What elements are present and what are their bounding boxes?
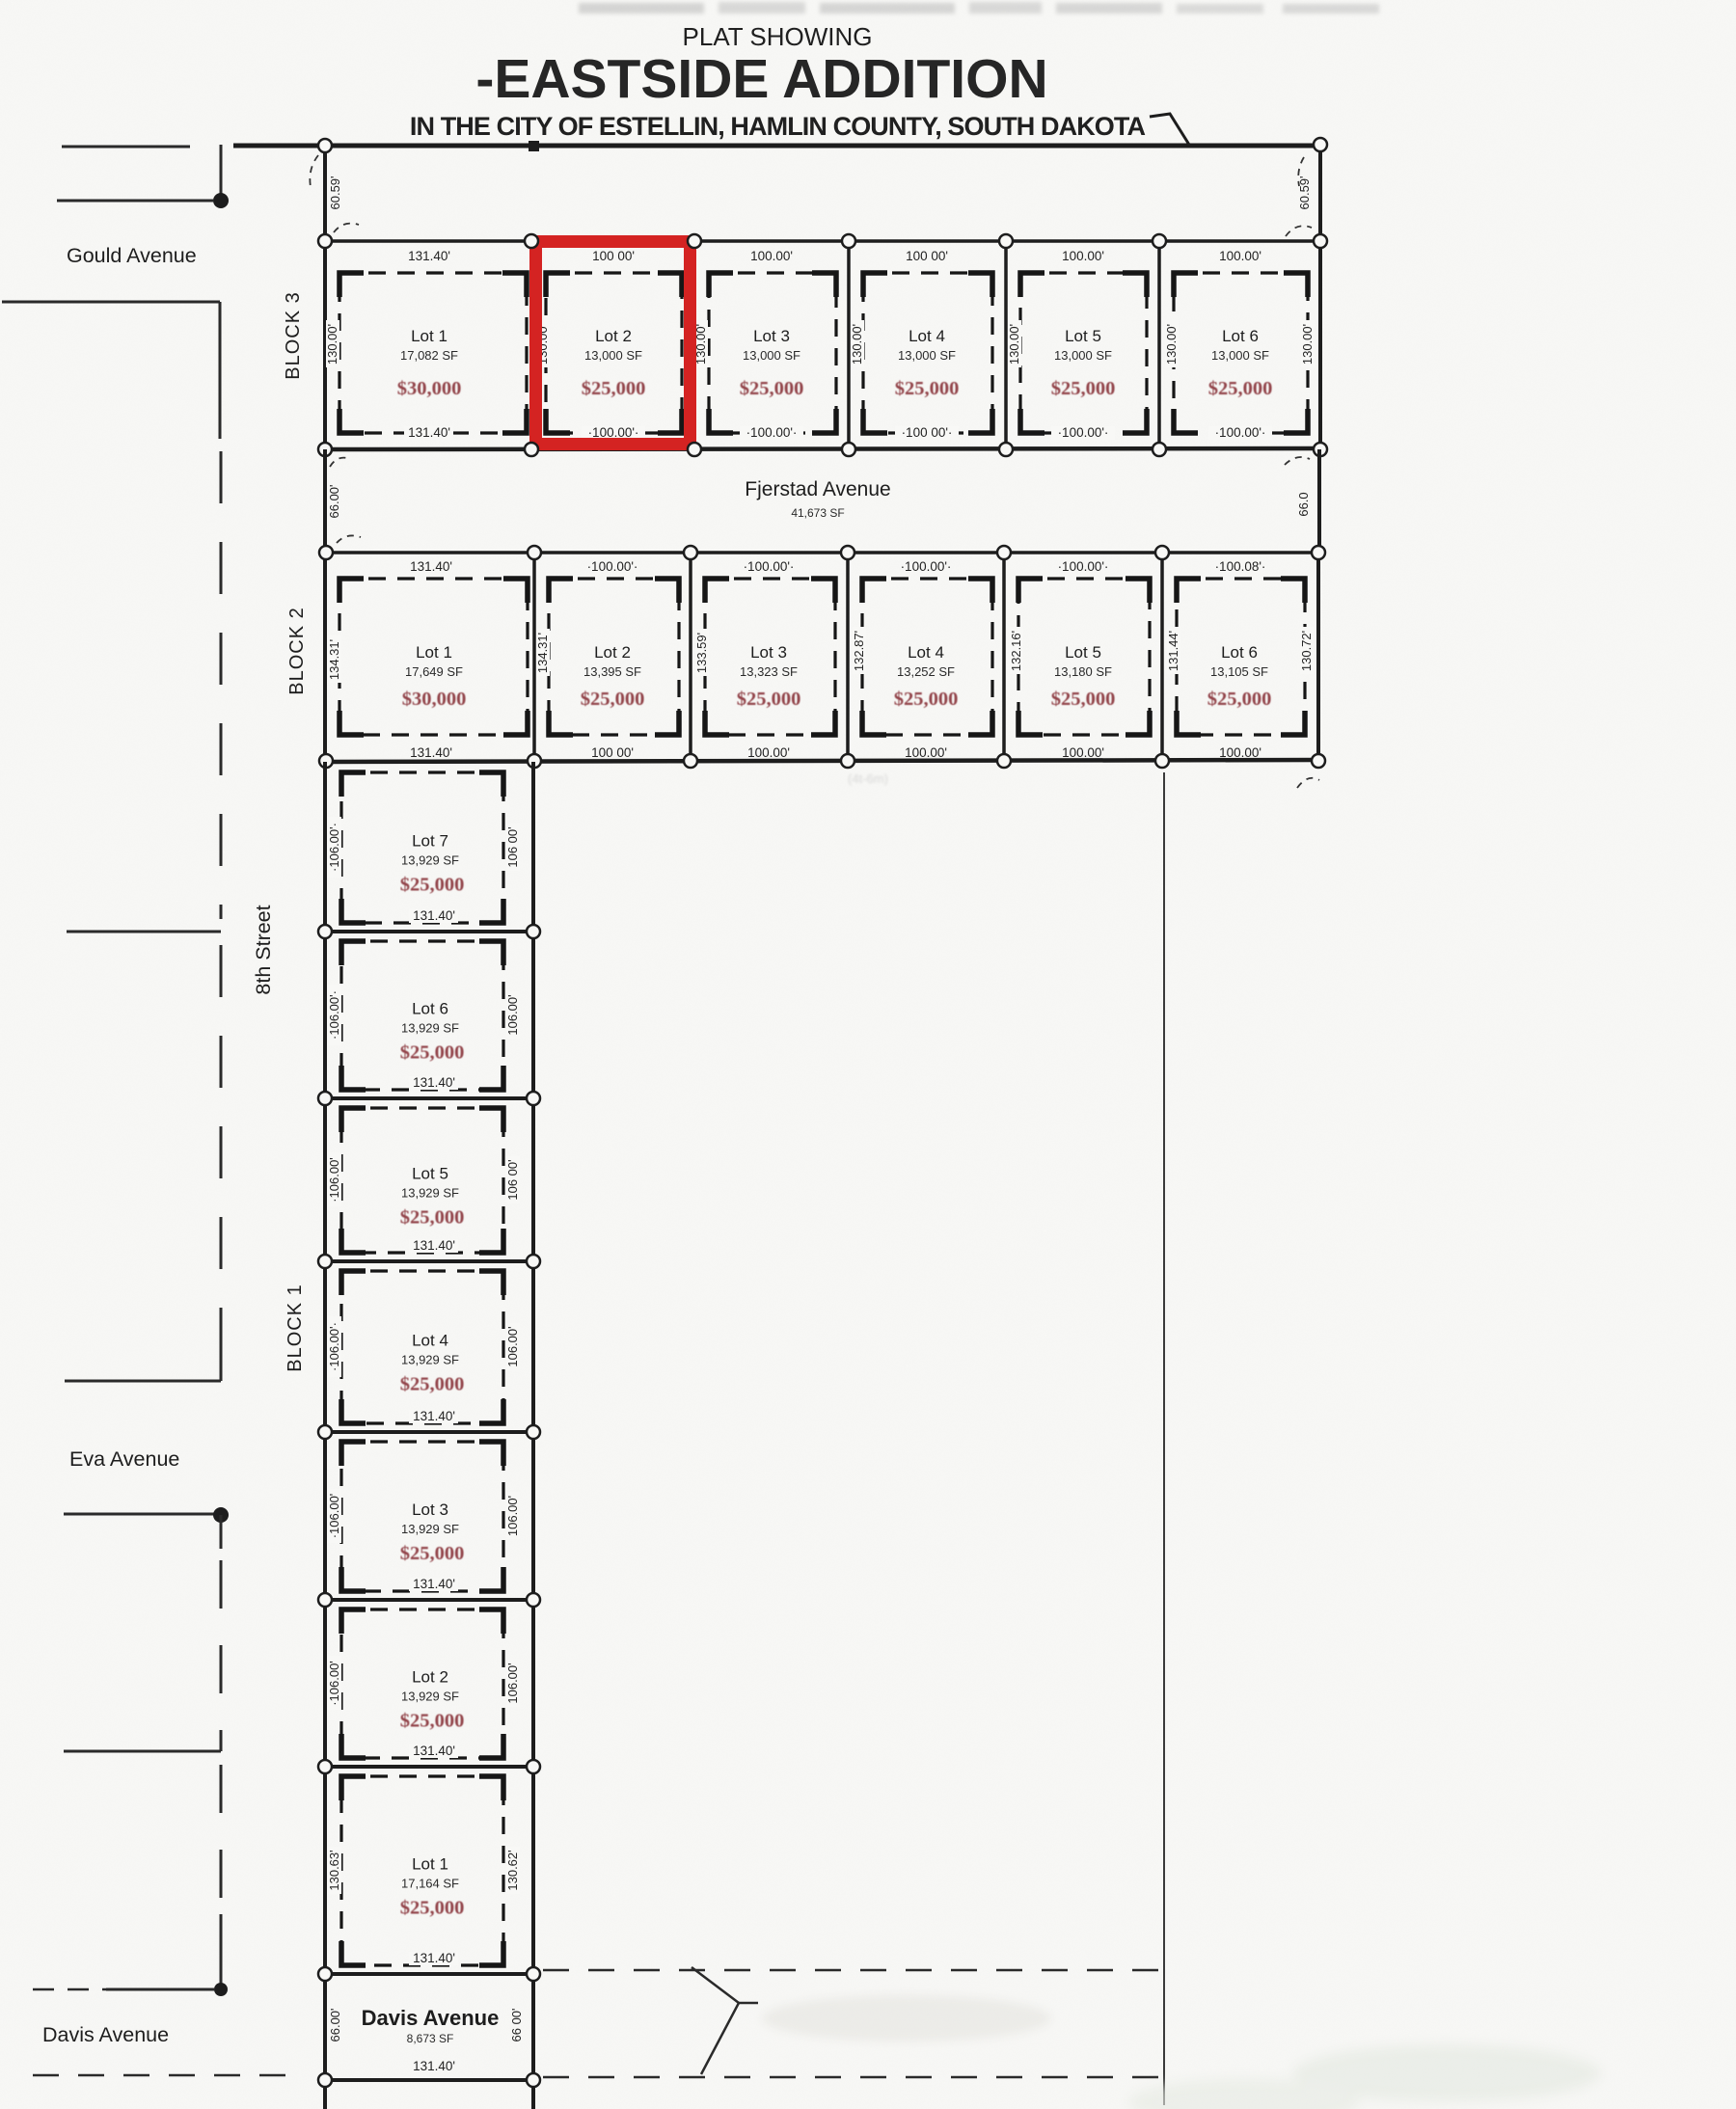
svg-text:66.00': 66.00'	[328, 2008, 342, 2041]
svg-text:·100.00'·: ·100.00'·	[744, 559, 795, 574]
svg-text:130.72': 130.72'	[1299, 631, 1314, 671]
svg-text:$25,000: $25,000	[737, 689, 801, 710]
svg-text:13,929 SF: 13,929 SF	[401, 1353, 459, 1367]
svg-text:BLOCK 3: BLOCK 3	[283, 291, 304, 379]
svg-text:13,000 SF: 13,000 SF	[743, 348, 800, 363]
svg-text:Lot 1: Lot 1	[412, 1855, 448, 1874]
svg-text:$25,000: $25,000	[400, 1207, 465, 1229]
svg-text:17,164 SF: 17,164 SF	[401, 1877, 459, 1891]
svg-text:$30,000: $30,000	[397, 378, 462, 399]
svg-text:·106.00'·: ·106.00'·	[327, 990, 341, 1040]
svg-text:131.40': 131.40'	[413, 908, 455, 923]
svg-text:Davis Avenue: Davis Avenue	[42, 2023, 169, 2046]
svg-text:13,323 SF: 13,323 SF	[740, 664, 798, 679]
svg-text:$25,000: $25,000	[400, 1042, 465, 1064]
svg-text:100 00': 100 00'	[591, 745, 634, 760]
svg-text:13,105 SF: 13,105 SF	[1210, 664, 1268, 679]
svg-text:41,673 SF: 41,673 SF	[791, 506, 844, 520]
svg-text:13,000 SF: 13,000 SF	[898, 348, 956, 363]
svg-text:106.00': 106.00'	[505, 1496, 520, 1536]
svg-text:130.62': 130.62'	[505, 1850, 520, 1890]
svg-text:·100 00'·: ·100 00'·	[902, 425, 953, 440]
svg-text:13,180 SF: 13,180 SF	[1054, 664, 1112, 679]
svg-text:$25,000: $25,000	[1208, 378, 1273, 399]
svg-text:13,000 SF: 13,000 SF	[1054, 348, 1112, 363]
svg-text:66.0: 66.0	[1296, 492, 1311, 516]
svg-text:133.59': 133.59'	[694, 633, 709, 673]
svg-text:130.00': 130.00'	[1300, 324, 1315, 365]
svg-text:132.87': 132.87'	[852, 631, 866, 671]
svg-text:PLAT SHOWING: PLAT SHOWING	[683, 22, 873, 51]
svg-text:100.00': 100.00'	[747, 745, 790, 760]
svg-text:17,649 SF: 17,649 SF	[405, 664, 463, 679]
svg-text:$25,000: $25,000	[400, 1374, 465, 1395]
svg-text:100.00': 100.00'	[1062, 249, 1104, 263]
svg-text:13,929 SF: 13,929 SF	[401, 1690, 459, 1704]
svg-text:106 00': 106 00'	[505, 826, 520, 867]
svg-text:Lot 2: Lot 2	[594, 643, 631, 662]
svg-text:·100.00'·: ·100.00'·	[746, 425, 798, 440]
svg-text:100 00': 100 00'	[592, 249, 635, 263]
svg-text:131.40': 131.40'	[413, 1577, 455, 1591]
svg-text:100.00': 100.00'	[1219, 249, 1261, 263]
svg-text:Lot 2: Lot 2	[595, 327, 632, 345]
svg-text:131.40': 131.40'	[413, 1744, 455, 1758]
svg-text:100 00': 100 00'	[906, 249, 948, 263]
svg-text:131.40': 131.40'	[408, 425, 450, 440]
svg-text:$25,000: $25,000	[581, 689, 645, 710]
svg-text:Lot 4: Lot 4	[909, 327, 945, 345]
svg-text:Lot 4: Lot 4	[412, 1332, 448, 1350]
svg-text:Lot 1: Lot 1	[411, 327, 448, 345]
svg-text:131.40': 131.40'	[413, 2059, 455, 2073]
svg-text:$25,000: $25,000	[400, 1711, 465, 1732]
svg-text:131.40': 131.40'	[413, 1075, 455, 1090]
svg-text:BLOCK 1: BLOCK 1	[285, 1284, 306, 1371]
svg-text:130.00': 130.00'	[850, 324, 864, 365]
svg-text:Lot 4: Lot 4	[908, 643, 944, 662]
svg-text:17,082 SF: 17,082 SF	[400, 348, 458, 363]
svg-text:13,929 SF: 13,929 SF	[401, 1186, 459, 1201]
svg-text:$25,000: $25,000	[400, 875, 465, 896]
svg-text:66.00': 66.00'	[327, 484, 341, 518]
svg-text:Lot 6: Lot 6	[1221, 643, 1258, 662]
svg-text:Lot 2: Lot 2	[412, 1668, 448, 1687]
svg-text:Gould Avenue: Gould Avenue	[67, 244, 197, 267]
svg-text:60.59': 60.59'	[1297, 176, 1312, 209]
svg-text:130.00': 130.00'	[1164, 324, 1179, 365]
svg-text:(4t-6m): (4t-6m)	[848, 771, 888, 786]
svg-text:131.40': 131.40'	[413, 1951, 455, 1965]
svg-text:·106.00': ·106.00'	[327, 1157, 341, 1203]
svg-text:·100.00'·: ·100.00'·	[587, 559, 638, 574]
svg-text:Lot 3: Lot 3	[750, 643, 787, 662]
svg-text:131.40': 131.40'	[410, 745, 452, 760]
svg-text:·106.00'·: ·106.00'·	[327, 1322, 341, 1371]
svg-text:$30,000: $30,000	[402, 689, 467, 710]
svg-text:IN THE CITY OF ESTELLIN, HAMLI: IN THE CITY OF ESTELLIN, HAMLIN COUNTY, …	[410, 112, 1146, 141]
svg-text:13,395 SF: 13,395 SF	[583, 664, 641, 679]
svg-text:131.40': 131.40'	[408, 249, 450, 263]
svg-text:13,929 SF: 13,929 SF	[401, 1021, 459, 1036]
svg-text:134.31': 134.31'	[535, 633, 550, 673]
svg-text:$25,000: $25,000	[1051, 689, 1116, 710]
svg-text:Eva Avenue: Eva Avenue	[69, 1447, 179, 1471]
svg-text:·100.00'·: ·100.00'·	[1215, 425, 1266, 440]
svg-text:$25,000: $25,000	[582, 378, 646, 399]
svg-text:66 00': 66 00'	[509, 2008, 524, 2041]
svg-text:Lot 5: Lot 5	[412, 1165, 448, 1183]
svg-text:60.59': 60.59'	[328, 176, 342, 209]
svg-text:134.31': 134.31'	[327, 639, 341, 680]
svg-text:131.40': 131.40'	[413, 1238, 455, 1253]
svg-text:Lot 1: Lot 1	[416, 643, 452, 662]
svg-text:·100.00'·: ·100.00'·	[588, 425, 639, 440]
svg-text:Lot 5: Lot 5	[1065, 643, 1101, 662]
svg-text:13,252 SF: 13,252 SF	[897, 664, 955, 679]
svg-text:131.44': 131.44'	[1166, 631, 1180, 671]
svg-text:100.00': 100.00'	[905, 745, 947, 760]
svg-text:132.16': 132.16'	[1009, 631, 1023, 671]
svg-text:8,673 SF: 8,673 SF	[407, 2032, 454, 2045]
svg-text:·100.00'·: ·100.00'·	[1058, 559, 1109, 574]
svg-text:·100.00'·: ·100.00'·	[901, 559, 952, 574]
svg-text:106.00': 106.00'	[505, 1326, 520, 1366]
svg-text:106.00': 106.00'	[505, 994, 520, 1035]
svg-text:Davis Avenue: Davis Avenue	[362, 2006, 500, 2030]
svg-text:$25,000: $25,000	[740, 378, 804, 399]
svg-text:Lot 3: Lot 3	[412, 1501, 448, 1519]
svg-text:Fjerstad Avenue: Fjerstad Avenue	[745, 478, 890, 500]
svg-text:130.00': 130.00'	[325, 324, 339, 365]
svg-text:·100.08'·: ·100.08'·	[1215, 559, 1266, 574]
svg-text:Lot 5: Lot 5	[1065, 327, 1101, 345]
svg-text:13,929 SF: 13,929 SF	[401, 853, 459, 868]
svg-text:13,000 SF: 13,000 SF	[584, 348, 642, 363]
svg-text:·100.00'·: ·100.00'·	[1058, 425, 1109, 440]
svg-text:$25,000: $25,000	[400, 1898, 465, 1919]
svg-text:·106.00'·: ·106.00'·	[327, 823, 341, 872]
svg-text:-EASTSIDE ADDITION: -EASTSIDE ADDITION	[475, 48, 1047, 110]
svg-text:100.00': 100.00'	[1062, 745, 1104, 760]
svg-text:$25,000: $25,000	[400, 1543, 465, 1564]
svg-text:Lot 6: Lot 6	[412, 1000, 448, 1018]
svg-text:13,929 SF: 13,929 SF	[401, 1522, 459, 1536]
svg-text:106.00': 106.00'	[505, 1663, 520, 1703]
svg-text:131.40': 131.40'	[413, 1409, 455, 1423]
svg-text:$25,000: $25,000	[895, 378, 960, 399]
svg-text:100.00': 100.00'	[1219, 745, 1261, 760]
svg-text:Lot 7: Lot 7	[412, 832, 448, 851]
svg-text:130.63': 130.63'	[327, 1850, 341, 1890]
svg-text:131.40': 131.40'	[410, 559, 452, 574]
svg-text:13,000 SF: 13,000 SF	[1211, 348, 1269, 363]
svg-text:Lot 3: Lot 3	[753, 327, 790, 345]
svg-text:130.00': 130.00'	[1007, 324, 1021, 365]
svg-text:$25,000: $25,000	[1051, 378, 1116, 399]
svg-text:·106.00': ·106.00'	[327, 1494, 341, 1539]
svg-text:Lot 6: Lot 6	[1222, 327, 1259, 345]
svg-text:100.00': 100.00'	[750, 249, 793, 263]
svg-text:$25,000: $25,000	[1207, 689, 1272, 710]
svg-text:8th Street: 8th Street	[252, 905, 275, 994]
svg-text:$25,000: $25,000	[894, 689, 959, 710]
svg-text:·106.00': ·106.00'	[327, 1661, 341, 1706]
svg-text:BLOCK 2: BLOCK 2	[286, 607, 308, 694]
svg-text:106 00': 106 00'	[505, 1159, 520, 1200]
